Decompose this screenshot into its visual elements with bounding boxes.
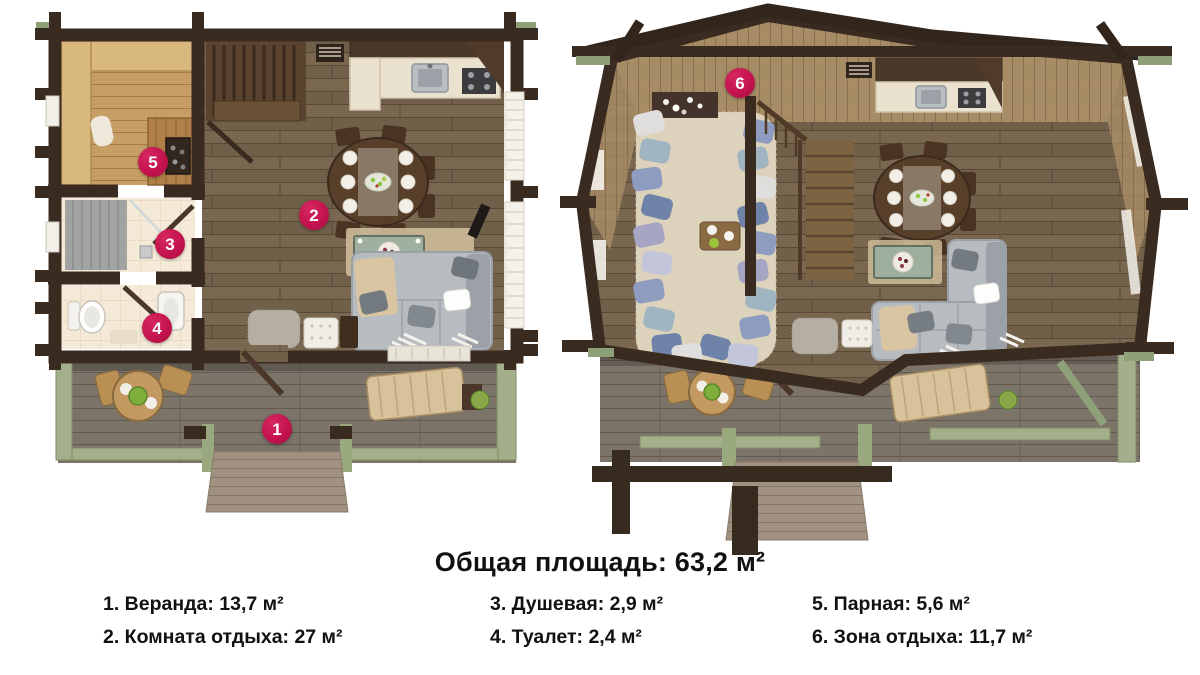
room-marker-rest-zone: 6 (725, 68, 755, 98)
room-marker-shower: 3 (155, 229, 185, 259)
shaggy-rug (248, 310, 300, 348)
room-marker-number: 2 (309, 207, 318, 224)
legend-item-veranda: 1. Веранда: 13,7 м² (103, 593, 342, 616)
toilet-room (61, 285, 195, 349)
veranda-plant (471, 391, 489, 409)
legend-column-2: 3. Душевая: 2,9 м² 4. Туалет: 2,4 м² (490, 593, 663, 659)
ottoman (304, 318, 338, 348)
room-marker-veranda: 1 (262, 414, 292, 444)
legend-item-shower: 3. Душевая: 2,9 м² (490, 593, 663, 616)
low-window (388, 346, 470, 361)
legend-column-1: 1. Веранда: 13,7 м² 2. Комната отдыха: 2… (103, 593, 342, 659)
room-marker-number: 3 (165, 236, 174, 253)
lounge-partition (745, 96, 756, 296)
veranda-lounger (366, 367, 466, 421)
room-marker-number: 4 (152, 320, 161, 337)
vent-grate (316, 44, 344, 62)
sauna-stove (166, 138, 190, 174)
legend-column-3: 5. Парная: 5,6 м² 6. Зона отдыха: 11,7 м… (812, 593, 1032, 659)
room-marker-number: 6 (735, 75, 744, 92)
legend-item-toilet: 4. Туалет: 2,4 м² (490, 626, 663, 649)
sofa-zone (346, 228, 492, 352)
room-marker-rest-room: 2 (299, 200, 329, 230)
veranda-steps (206, 452, 348, 512)
attic-ottoman (842, 320, 872, 347)
bath-mat (110, 330, 138, 344)
attic-plan (560, 10, 1188, 555)
room-marker-number: 1 (272, 421, 281, 438)
legend-item-steam-room: 5. Парная: 5,6 м² (812, 593, 1032, 616)
floor-plan-image: 1 2 3 4 5 6 Общая площадь: 63,2 м² 1. Ве… (0, 0, 1200, 675)
room-marker-toilet: 4 (142, 313, 172, 343)
room-marker-steam-room: 5 (138, 147, 168, 177)
legend-item-rest-zone: 6. Зона отдыха: 11,7 м² (812, 626, 1032, 649)
floor-plans-rendering (0, 0, 1200, 555)
legend-item-rest-room: 2. Комната отдыха: 27 м² (103, 626, 342, 649)
side-table (340, 316, 358, 348)
steam-room (61, 41, 195, 185)
total-area-title: Общая площадь: 63,2 м² (0, 547, 1200, 578)
attic-shaggy-rug (792, 318, 838, 354)
room-marker-number: 5 (148, 154, 157, 171)
